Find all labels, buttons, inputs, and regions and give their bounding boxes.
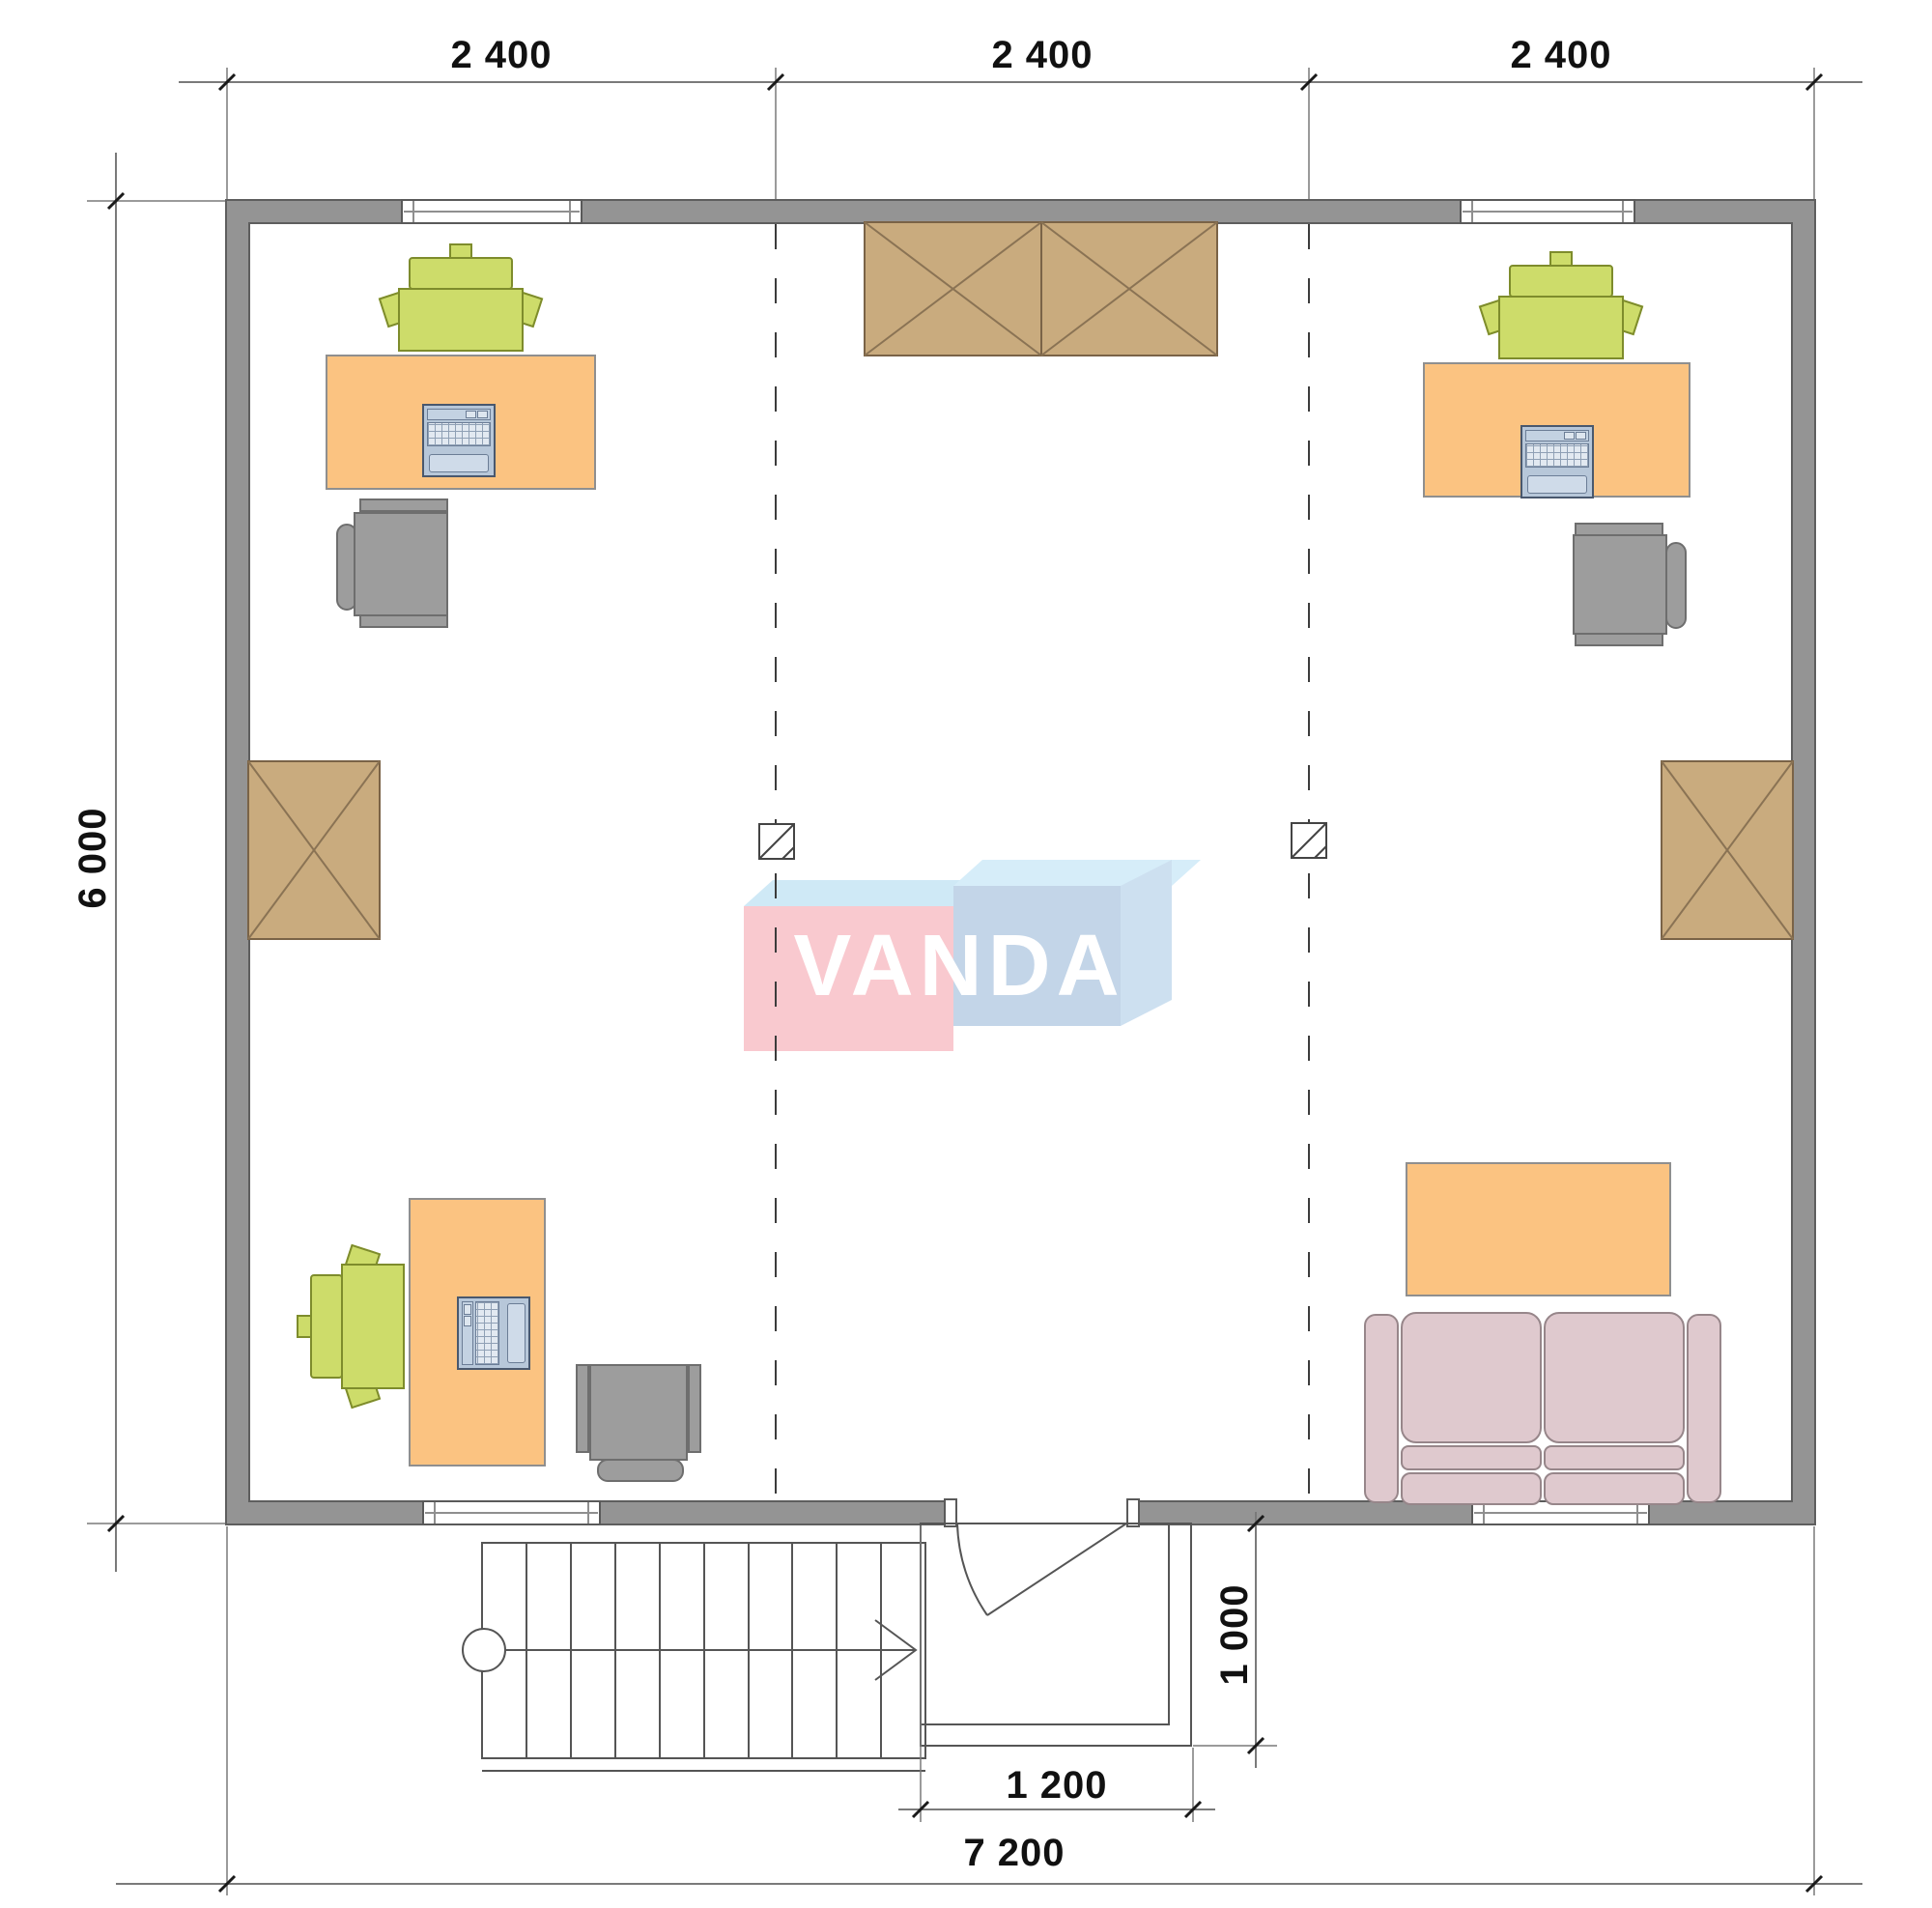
wardrobe-left-wall	[248, 761, 380, 939]
brand-watermark: VANDA	[732, 920, 1186, 1012]
laptop-screen	[507, 1303, 526, 1363]
stairs-start-circle	[463, 1629, 505, 1671]
sofa-seat-cushion	[1401, 1472, 1542, 1505]
wardrobe-top-center	[865, 222, 1217, 356]
chair-seat	[341, 1264, 405, 1389]
wardrobe-right-wall	[1662, 761, 1793, 939]
coffee-table	[1406, 1162, 1671, 1296]
laptop-keyboard	[1525, 443, 1589, 468]
sofa-back-cushion	[1544, 1312, 1685, 1443]
chair-back	[1509, 265, 1613, 298]
chair-back	[409, 257, 513, 290]
chair-seat	[1498, 296, 1624, 359]
door-leaf	[987, 1524, 1126, 1615]
office-chair-bottom-left	[295, 1254, 409, 1399]
floor-plan-canvas: VANDA	[0, 0, 1932, 1908]
sofa-seat-cushion	[1401, 1445, 1542, 1470]
dimension-label-porch-width: 1 200	[980, 1765, 1134, 1806]
column-symbol-right	[1292, 823, 1326, 858]
dimension-label-total-width: 7 200	[937, 1833, 1092, 1873]
laptop-keyboard	[475, 1301, 499, 1365]
sofa-seat-cushion	[1544, 1445, 1685, 1470]
sofa-armrest-right	[1687, 1314, 1721, 1503]
dimension-label-left-height: 6 000	[72, 781, 113, 935]
office-chair-top-left	[388, 242, 533, 356]
column-symbol-left	[759, 824, 794, 859]
dimension-label-top-2: 2 400	[965, 35, 1120, 75]
office-chair-top-right	[1489, 249, 1634, 363]
laptop-top-left	[422, 404, 496, 477]
laptop-screen	[429, 454, 489, 472]
laptop-bottom-left	[457, 1296, 530, 1370]
laptop-top-right	[1520, 425, 1594, 498]
chair-back	[310, 1274, 343, 1379]
stairs	[463, 1543, 925, 1771]
door-swing	[957, 1524, 1126, 1615]
sofa-armrest-left	[1364, 1314, 1399, 1503]
dimension-label-top-1: 2 400	[424, 35, 579, 75]
sofa-back-cushion	[1401, 1312, 1542, 1443]
laptop-screen	[1527, 475, 1587, 494]
dimension-label-top-3: 2 400	[1484, 35, 1638, 75]
sofa-seat-cushion	[1544, 1472, 1685, 1505]
chair-seat	[398, 288, 524, 352]
laptop-keyboard	[427, 422, 491, 446]
dimension-label-porch-depth: 1 000	[1214, 1557, 1255, 1712]
